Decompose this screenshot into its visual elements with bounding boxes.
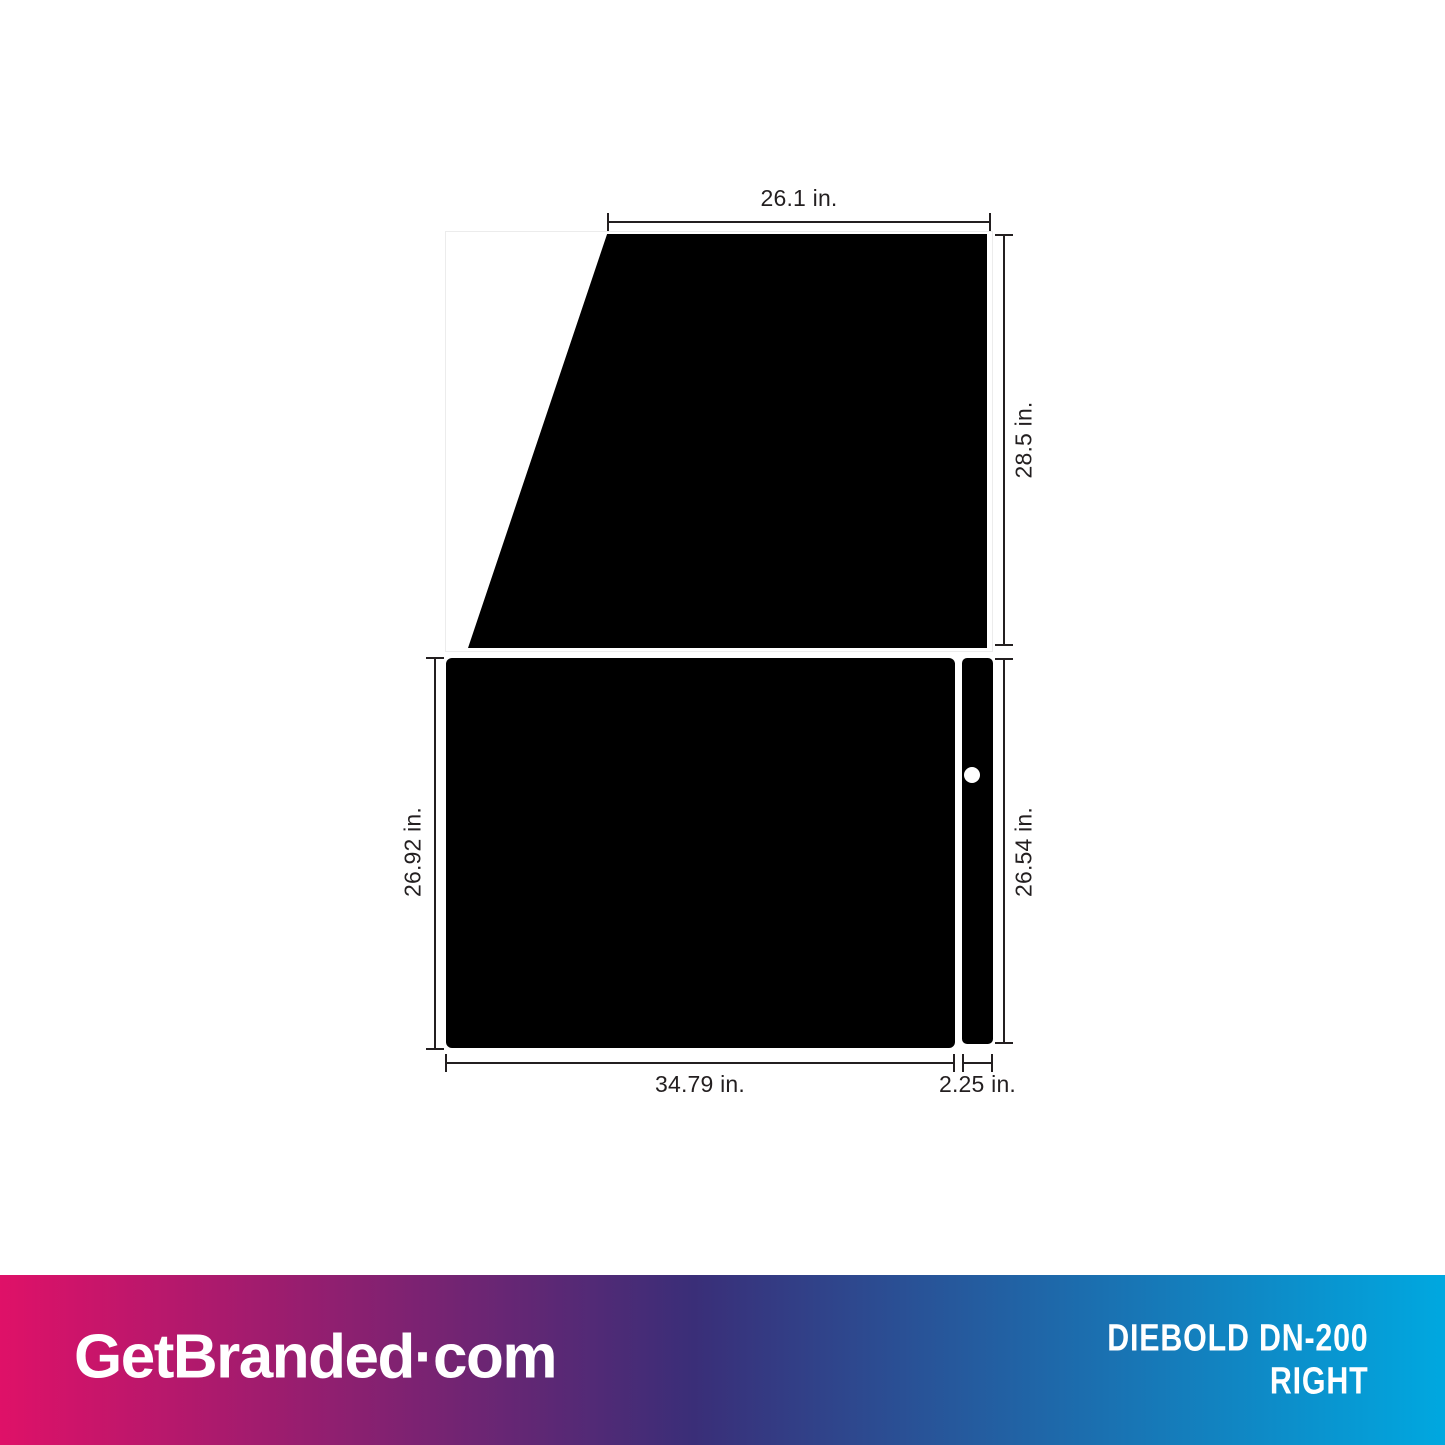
dimension-label: 2.25 in. <box>939 1071 1016 1098</box>
dimension-tick <box>953 1054 955 1072</box>
dimension-line <box>445 1062 955 1064</box>
dimension-tick <box>962 1054 964 1072</box>
dimension-tick <box>445 1054 447 1072</box>
dimension-line <box>607 221 991 223</box>
dimension-tick <box>995 658 1013 660</box>
dimension-tick <box>426 657 444 659</box>
dimension-tick <box>991 1054 993 1072</box>
brand-logo-suffix: ·com <box>414 1323 556 1392</box>
mounting-hole <box>964 767 980 783</box>
dimension-label: 26.54 in. <box>1011 807 1038 897</box>
dimension-line <box>1003 234 1005 646</box>
dimension-tick <box>995 1042 1013 1044</box>
brand-logo: GetBranded·com <box>74 1322 556 1393</box>
main-panel-shape <box>446 658 955 1048</box>
dimension-tick <box>995 234 1013 236</box>
footer-banner: GetBranded·com DIEBOLD DN-200 RIGHT <box>0 1275 1445 1445</box>
dimension-line <box>434 657 436 1050</box>
dimension-label: 26.92 in. <box>400 807 427 897</box>
dimension-line <box>962 1062 993 1064</box>
dimension-tick <box>607 213 609 231</box>
product-label: DIEBOLD DN-200 RIGHT <box>1107 1317 1368 1402</box>
product-name: DIEBOLD DN-200 <box>1107 1317 1368 1360</box>
dimension-label: 26.1 in. <box>760 185 837 212</box>
product-side: RIGHT <box>1107 1360 1368 1403</box>
brand-logo-text: GetBranded <box>74 1323 414 1392</box>
dimension-label: 28.5 in. <box>1011 401 1038 478</box>
dimension-label: 34.79 in. <box>655 1071 745 1098</box>
dimension-tick <box>995 644 1013 646</box>
dimension-line <box>1003 658 1005 1044</box>
dimension-tick <box>989 213 991 231</box>
diagram-canvas: 26.1 in. 28.5 in. 26.92 in. 26.54 in. 34… <box>0 0 1445 1445</box>
dimension-tick <box>426 1048 444 1050</box>
side-strip-shape <box>962 658 993 1044</box>
